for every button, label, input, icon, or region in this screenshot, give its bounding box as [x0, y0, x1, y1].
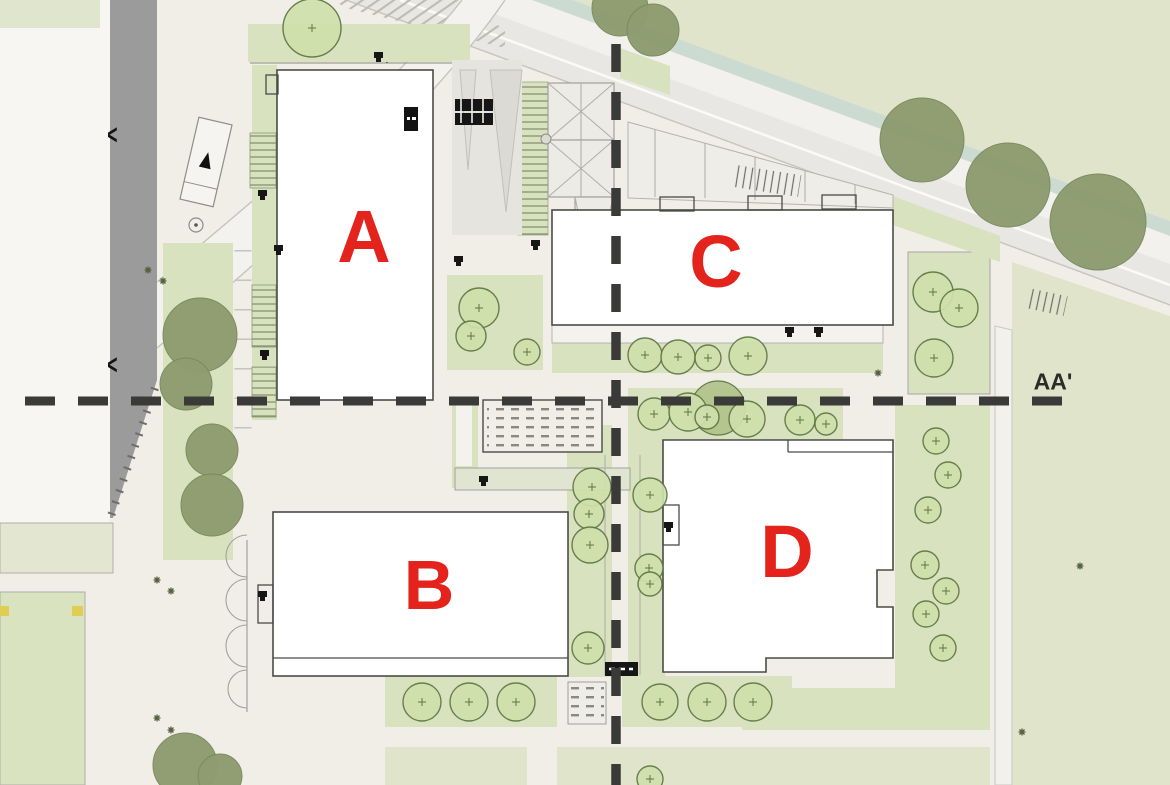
- east-footpath: [995, 326, 1012, 785]
- field-marker-yellow-2: [72, 606, 83, 616]
- building-a-core-mark: [412, 117, 416, 120]
- tree-light: [572, 527, 608, 563]
- tree-light: [923, 428, 949, 454]
- walkway-south-of-c: [552, 325, 883, 343]
- tree-light: [930, 635, 956, 661]
- plant-mark-icon: [1077, 563, 1084, 570]
- tree-light: [574, 499, 604, 529]
- plant-mark-icon: [145, 267, 152, 274]
- road-chevron-north: <: [107, 121, 117, 149]
- outdoor-stairs-treads: [570, 684, 604, 722]
- tree-light: [935, 462, 961, 488]
- tree-light: [729, 337, 767, 375]
- road-chevron-south: <: [107, 351, 117, 379]
- tree-light: [695, 345, 721, 371]
- plaza-terrace-pattern: [487, 404, 598, 448]
- tree-light: [638, 572, 662, 596]
- south-field-1: [385, 747, 527, 785]
- tree-light: [661, 340, 695, 374]
- tree-light: [572, 632, 604, 664]
- tree-light: [283, 0, 341, 57]
- building-d-label: D: [760, 515, 813, 589]
- southwest-green-plot: [0, 523, 113, 573]
- plant-mark-icon: [875, 370, 882, 377]
- tree-light: [695, 405, 719, 429]
- section-label-aa: AA': [1034, 371, 1073, 394]
- tree-light: [933, 578, 959, 604]
- garden-east-of-d: [895, 405, 990, 730]
- tree-light: [911, 551, 939, 579]
- tree-light: [815, 413, 837, 435]
- tree-light: [456, 321, 486, 351]
- tree-light: [403, 683, 441, 721]
- green-south-of-d: [742, 688, 990, 730]
- tree-dark: [966, 143, 1050, 227]
- tree-light: [913, 601, 939, 627]
- west-sidewalk: [0, 0, 110, 523]
- plant-mark-icon: [154, 715, 161, 722]
- tree-light: [450, 683, 488, 721]
- tree-light: [514, 339, 540, 365]
- south-field-2: [557, 747, 990, 785]
- northwest-green-corner: [0, 0, 100, 28]
- bike-parking-hatch: [518, 82, 548, 235]
- tree-dark: [627, 4, 679, 56]
- turning-circle-dot: [194, 223, 198, 227]
- plaza-green-inner: [456, 404, 472, 466]
- plant-mark-icon: [160, 278, 167, 285]
- plant-mark-icon: [168, 727, 175, 734]
- east-meadow: [1012, 262, 1170, 785]
- tree-light: [785, 405, 815, 435]
- tree-light: [729, 401, 765, 437]
- tree-dark: [181, 474, 243, 536]
- building-a-label: A: [337, 200, 390, 274]
- green-band-north-of-a: [248, 24, 470, 62]
- sports-field: [0, 592, 85, 785]
- tree-light: [642, 684, 678, 720]
- tree-light: [628, 338, 662, 372]
- tree-dark: [880, 98, 964, 182]
- tree-light: [734, 683, 772, 721]
- bollard: [541, 134, 551, 144]
- tree-light: [688, 683, 726, 721]
- building-a-core-mark: [407, 117, 410, 120]
- plant-mark-icon: [168, 588, 175, 595]
- building-b-label: B: [404, 550, 455, 620]
- tree-dark: [1050, 174, 1146, 270]
- tree-light: [915, 497, 941, 523]
- building-c-label: C: [689, 225, 742, 299]
- field-marker-yellow-1: [0, 606, 9, 616]
- tree-light: [915, 339, 953, 377]
- tree-light: [940, 289, 978, 327]
- site-plan-drawing: [0, 0, 1170, 785]
- tree-light: [633, 478, 667, 512]
- tree-dark: [186, 424, 238, 476]
- tree-light: [637, 766, 663, 785]
- site-plan: A B C D AA' < <: [0, 0, 1170, 785]
- plant-mark-icon: [154, 577, 161, 584]
- plant-mark-icon: [1019, 729, 1026, 736]
- tree-light: [497, 683, 535, 721]
